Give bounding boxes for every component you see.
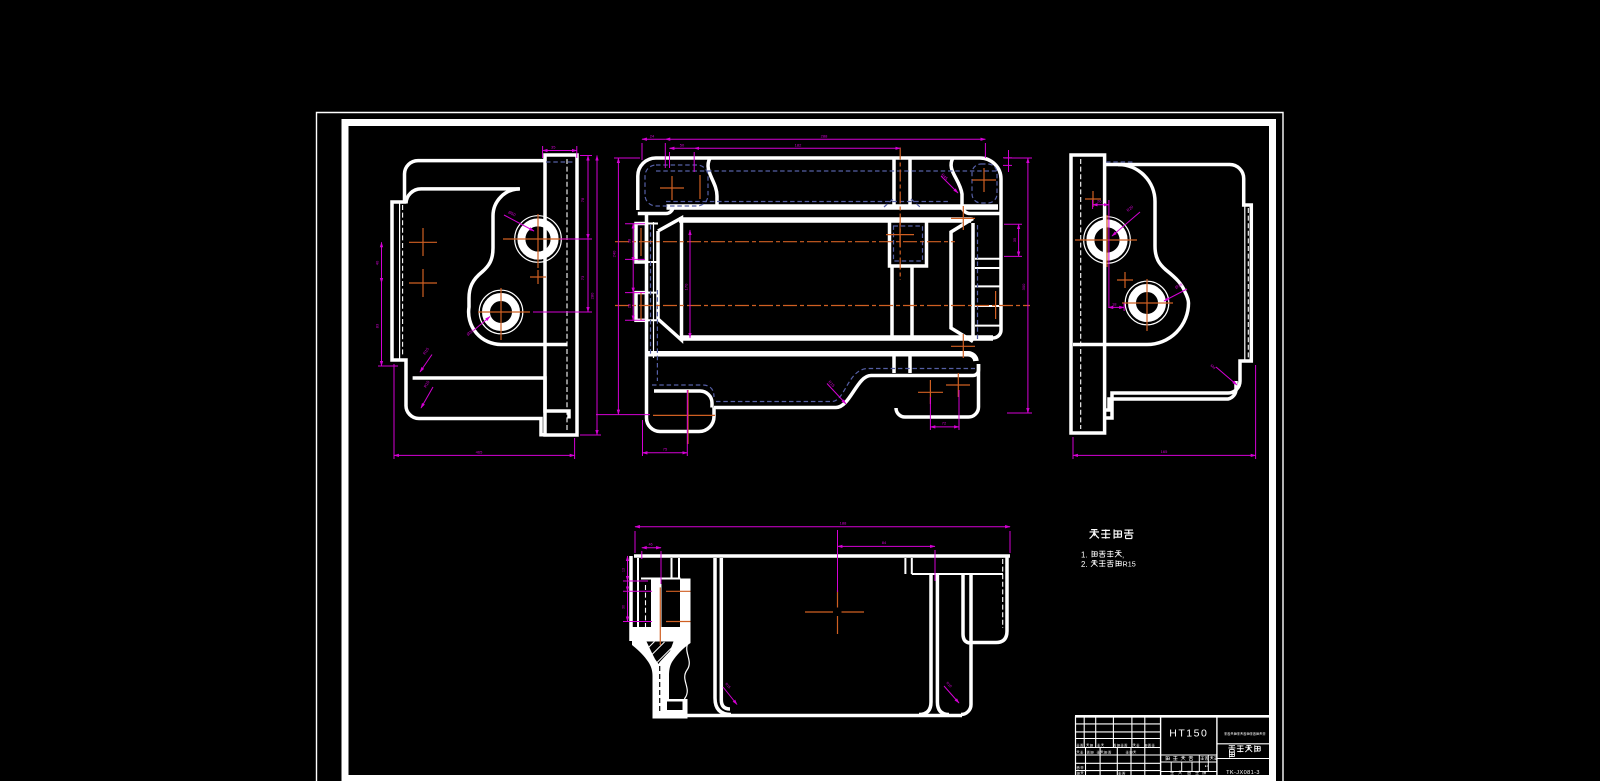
svg-text:165: 165 — [1161, 449, 1168, 454]
svg-text:465: 465 — [476, 450, 483, 455]
svg-text:35: 35 — [551, 145, 556, 150]
svg-text:182: 182 — [795, 143, 802, 148]
svg-text:75: 75 — [663, 447, 668, 452]
svg-text:18: 18 — [1112, 302, 1117, 307]
svg-text:35: 35 — [1012, 237, 1017, 242]
svg-text:1.: 1. — [1081, 550, 1088, 559]
svg-text:40: 40 — [375, 260, 380, 265]
svg-text:HT150: HT150 — [1169, 728, 1208, 740]
svg-text:170: 170 — [684, 283, 689, 290]
svg-text:38: 38 — [627, 238, 632, 243]
svg-text:300: 300 — [1021, 283, 1026, 290]
svg-text:,: , — [1122, 550, 1124, 559]
svg-text:280: 280 — [590, 292, 595, 299]
svg-text:TK-JX081-3: TK-JX081-3 — [1226, 770, 1260, 776]
svg-text:73: 73 — [580, 275, 585, 280]
svg-text:26: 26 — [1097, 199, 1102, 204]
svg-text:50: 50 — [680, 143, 685, 148]
svg-text:288: 288 — [821, 134, 828, 139]
svg-text:24: 24 — [650, 134, 655, 139]
svg-text:28: 28 — [627, 303, 632, 308]
svg-text:188: 188 — [840, 521, 847, 526]
svg-text:2.: 2. — [1081, 560, 1088, 569]
svg-text:72: 72 — [942, 421, 947, 426]
svg-text:13: 13 — [622, 568, 626, 572]
svg-text:84: 84 — [882, 540, 887, 545]
svg-text:240: 240 — [612, 250, 617, 257]
svg-text:R15: R15 — [1123, 560, 1136, 569]
svg-text:78: 78 — [580, 197, 585, 202]
svg-text:83: 83 — [375, 323, 380, 328]
svg-text:30: 30 — [622, 605, 626, 609]
svg-text:46: 46 — [649, 543, 653, 547]
